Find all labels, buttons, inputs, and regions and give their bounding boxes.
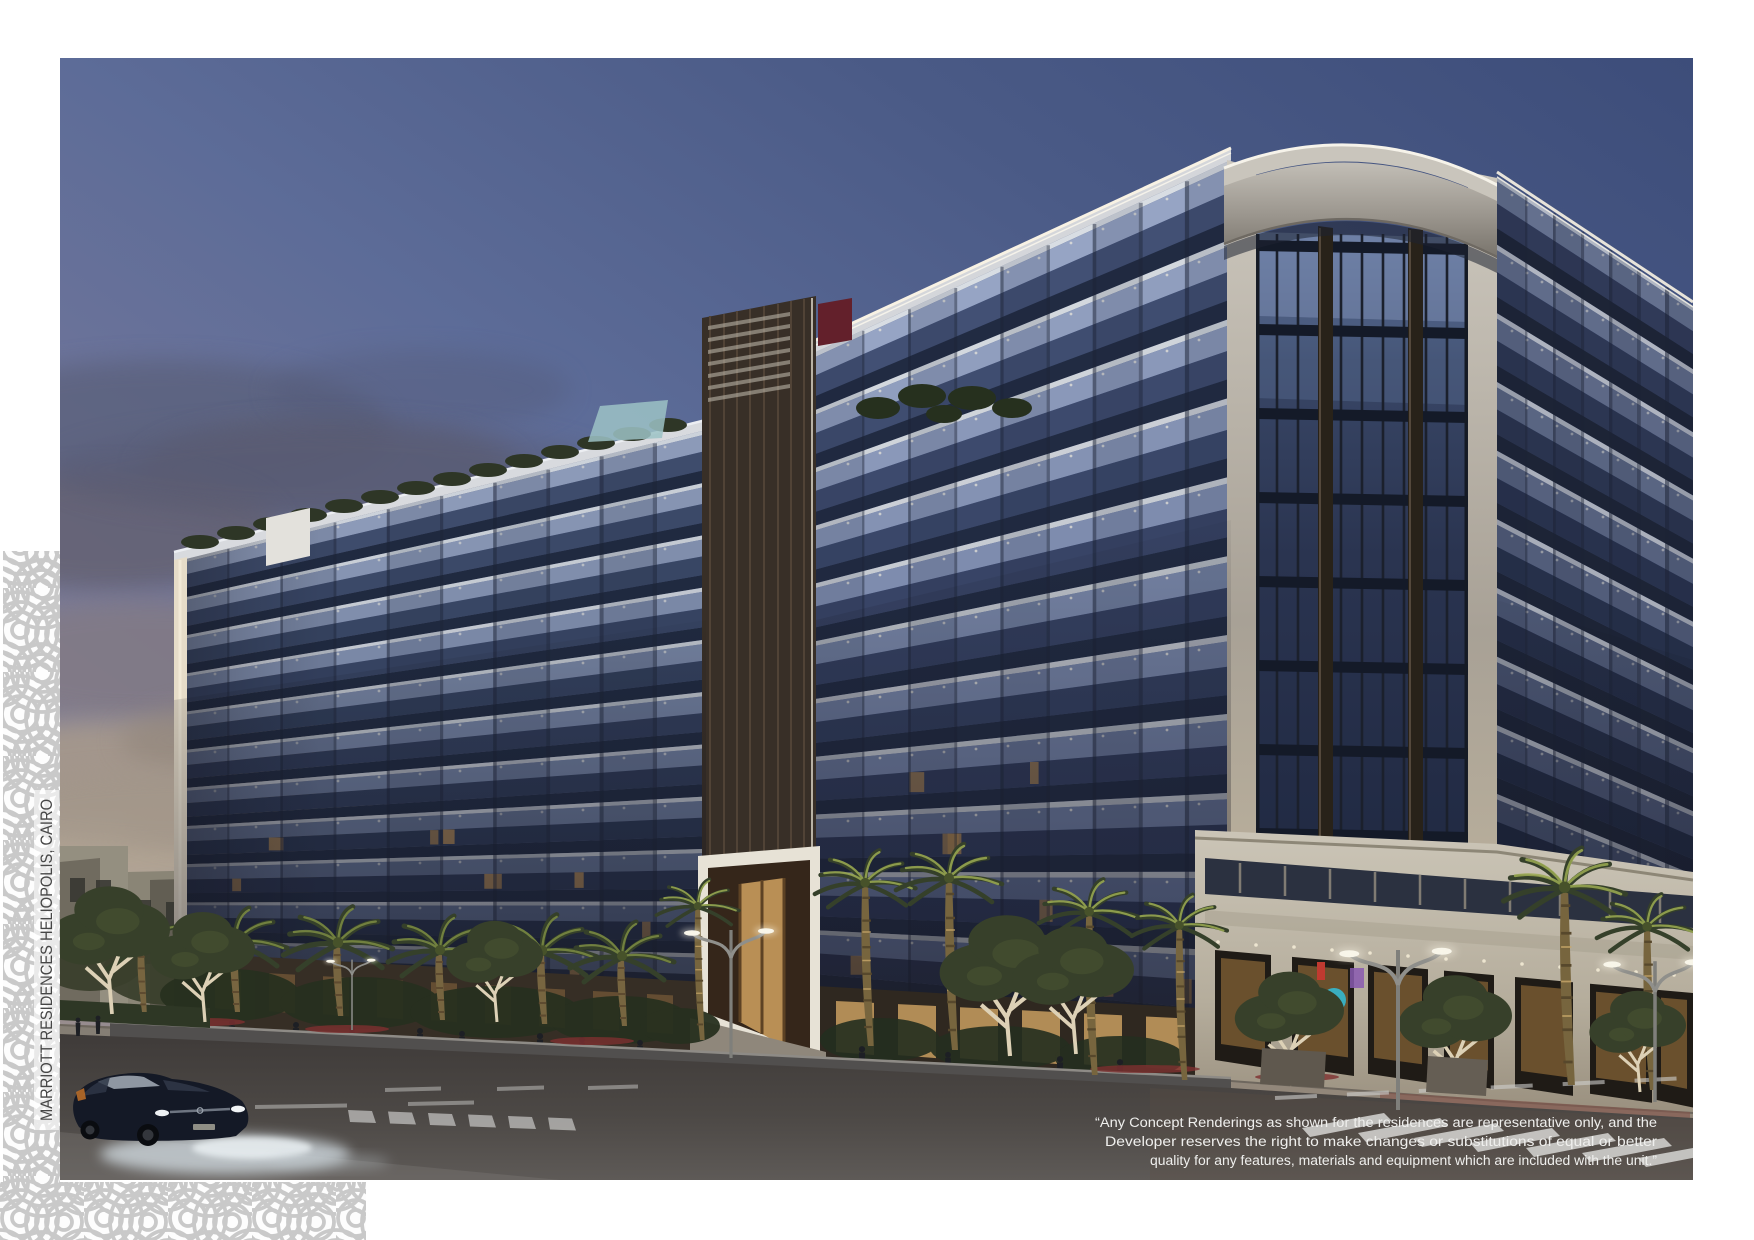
svg-text:“Any Concept Renderings as sho: “Any Concept Renderings as shown for the…	[1095, 1115, 1657, 1131]
svg-text:MARRIOTT RESIDENCES HELIOPOLIS: MARRIOTT RESIDENCES HELIOPOLIS, CAIRO	[37, 799, 56, 1121]
svg-text:quality for any features, mate: quality for any features, materials and …	[1150, 1153, 1657, 1169]
svg-text:Developer reserves the right t: Developer reserves the right to make cha…	[1105, 1134, 1657, 1150]
